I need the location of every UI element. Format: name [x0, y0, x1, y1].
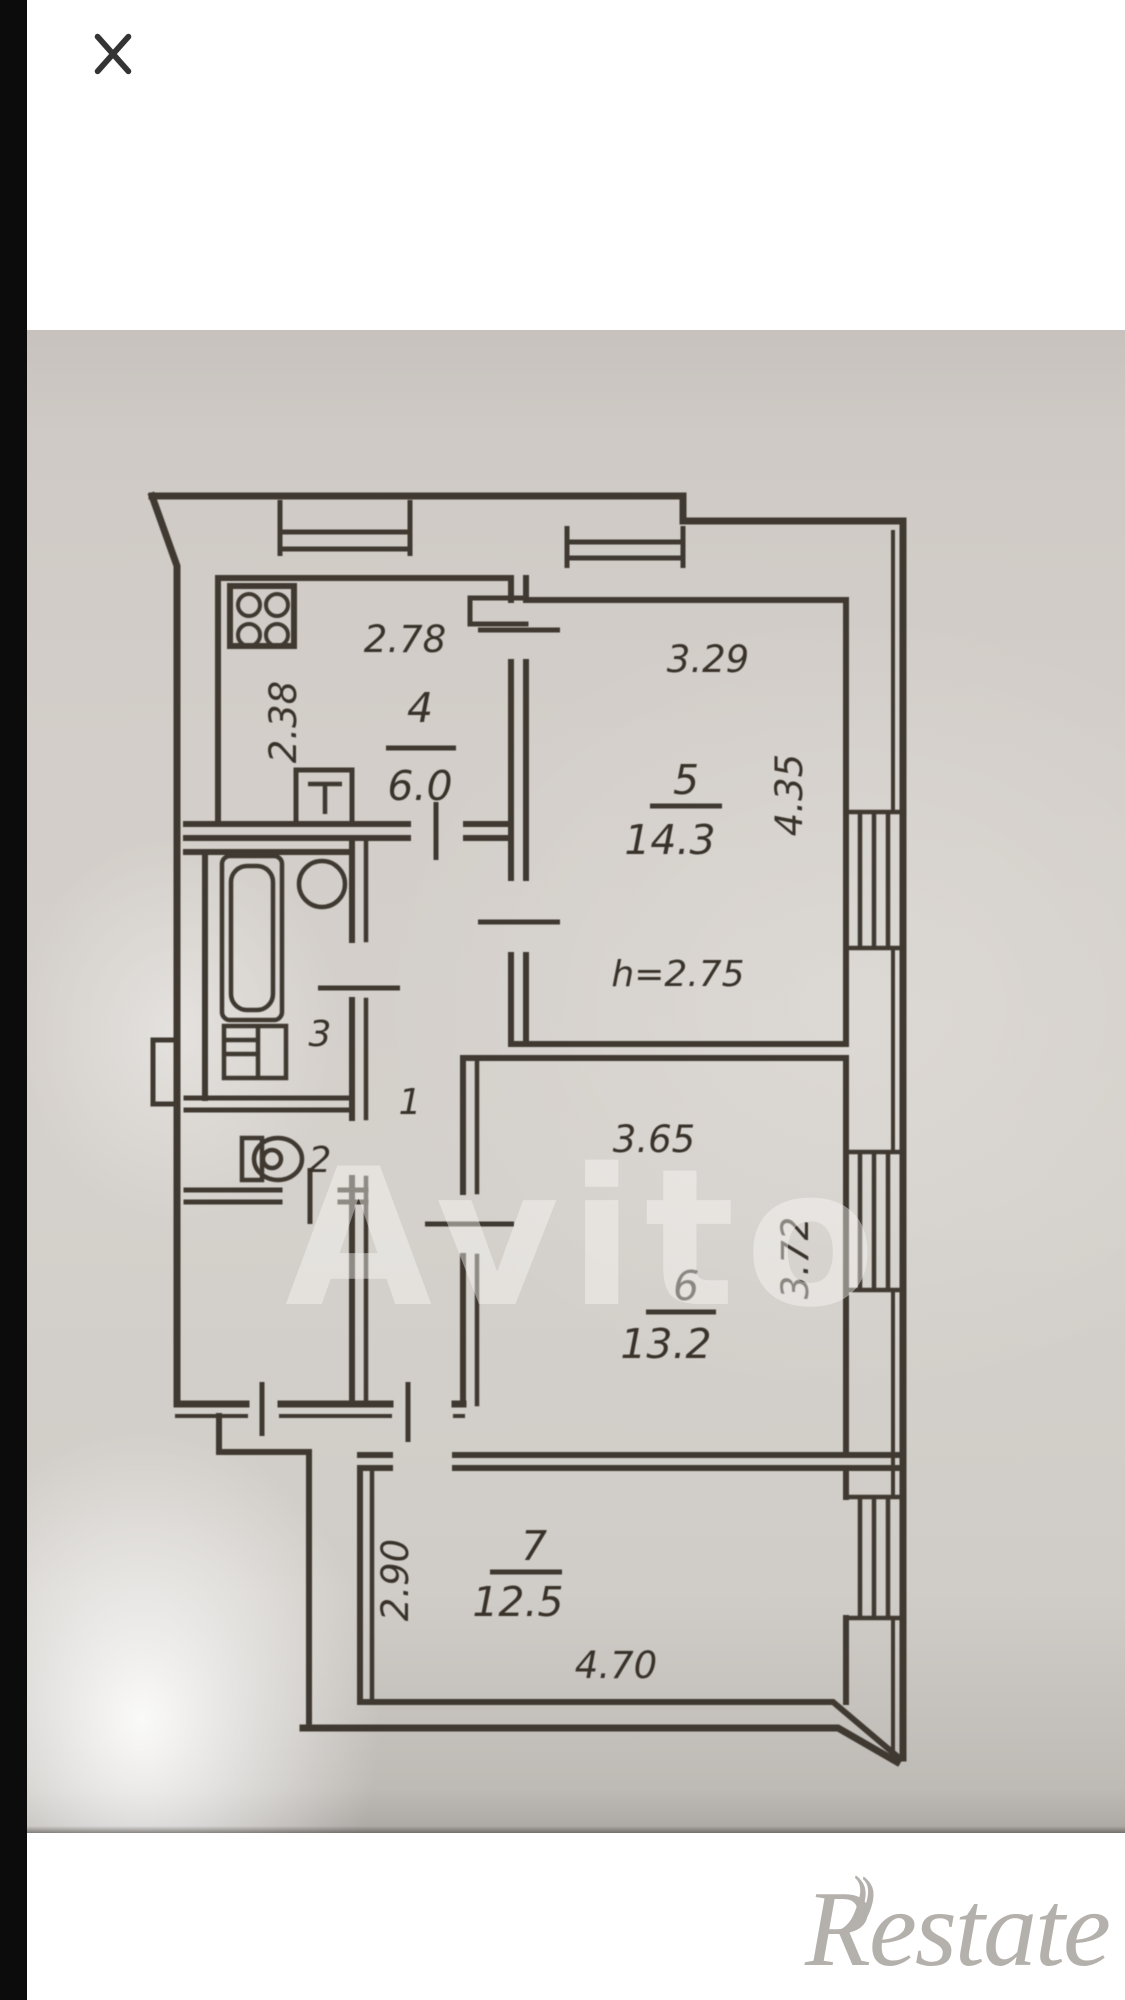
bath-number: 3 — [309, 1014, 332, 1055]
dim-room7-depth: 2.90 — [374, 1539, 417, 1621]
room-kitchen-number: 4 — [407, 684, 433, 732]
photo-bottom-edge — [27, 1826, 1125, 1833]
window-room5 — [567, 526, 683, 568]
bathtub-icon — [222, 856, 282, 1020]
window-room7 — [846, 1497, 903, 1618]
sink-icon — [299, 861, 345, 907]
room5-area: 14.3 — [624, 816, 715, 864]
vent-shaft-room5 — [846, 812, 903, 948]
dim-kitchen-depth: 2.38 — [262, 681, 305, 763]
window-kitchen — [280, 500, 410, 556]
room7-number: 7 — [521, 1522, 547, 1570]
dim-kitchen-width: 2.78 — [364, 618, 446, 661]
floorplan-svg: 2.78 2.38 4 6.0 3.29 5 14.3 4.35 h=2.75 … — [27, 330, 1125, 1833]
close-icon — [88, 29, 138, 79]
washer-icon — [224, 1026, 286, 1078]
floorplan-photo[interactable]: 2.78 2.38 4 6.0 3.29 5 14.3 4.35 h=2.75 … — [27, 330, 1125, 1833]
dim-room5-width: 3.29 — [667, 638, 749, 681]
room5-number: 5 — [673, 756, 699, 804]
dim-room5-depth: 4.35 — [768, 754, 811, 836]
dim-room7-width: 4.70 — [575, 1644, 657, 1687]
room7-area: 12.5 — [472, 1578, 563, 1626]
close-button[interactable] — [82, 24, 144, 84]
watermark-avito: Avito — [285, 1128, 886, 1349]
room-kitchen-area: 6.0 — [387, 762, 452, 810]
brand-logo: Restate — [805, 1868, 1109, 1992]
image-viewer-screen: 2.78 2.38 4 6.0 3.29 5 14.3 4.35 h=2.75 … — [0, 0, 1125, 2000]
stove-icon — [230, 586, 294, 646]
ceiling-height-note: h=2.75 — [611, 954, 744, 995]
duct-column-icon — [296, 770, 352, 824]
hall-number: 1 — [399, 1082, 422, 1123]
letterbox-left — [0, 0, 27, 2000]
